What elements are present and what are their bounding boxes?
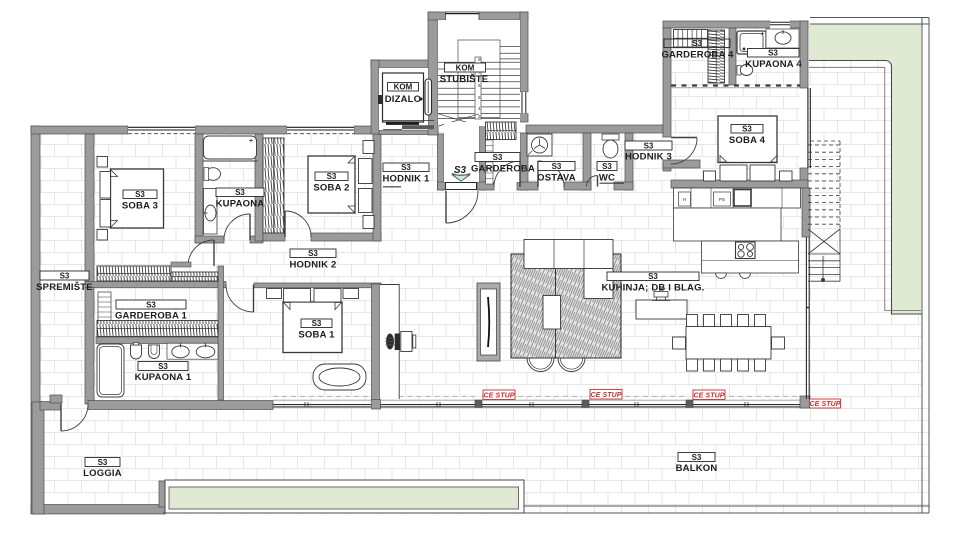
svg-text:KOM: KOM (456, 63, 475, 72)
svg-text:S3: S3 (768, 49, 778, 58)
svg-text:S3: S3 (327, 172, 337, 181)
svg-text:GARDEROBA 1: GARDEROBA 1 (115, 311, 188, 322)
svg-text:CE STUP: CE STUP (590, 392, 621, 399)
svg-text:SOBA 1: SOBA 1 (298, 330, 335, 341)
svg-text:PS: PS (719, 197, 725, 202)
svg-text:KOM: KOM (394, 83, 413, 92)
svg-text:S3: S3 (602, 162, 612, 171)
svg-text:S3: S3 (158, 362, 168, 371)
svg-text:HODNIK 3: HODNIK 3 (625, 152, 672, 163)
svg-text:SOBA 3: SOBA 3 (122, 201, 158, 212)
svg-text:WC: WC (599, 173, 615, 184)
svg-text:S3: S3 (308, 249, 318, 258)
svg-text:OSTAVA: OSTAVA (537, 173, 576, 184)
svg-text:S3: S3 (692, 39, 702, 48)
svg-text:S3: S3 (312, 319, 322, 328)
svg-text:S3: S3 (401, 163, 411, 172)
svg-text:S3: S3 (552, 162, 562, 171)
svg-text:LOGGIA: LOGGIA (83, 468, 122, 479)
svg-text:KUPAONA 4: KUPAONA 4 (745, 59, 802, 70)
svg-text:S3: S3 (135, 190, 145, 199)
svg-text:SOBA 4: SOBA 4 (729, 135, 766, 146)
svg-text:GARDEROBA: GARDEROBA (471, 164, 535, 175)
svg-text:S3: S3 (648, 272, 658, 281)
svg-text:H: H (683, 197, 686, 202)
svg-text:HODNIK 2: HODNIK 2 (290, 260, 337, 271)
svg-text:CE STUP: CE STUP (483, 392, 514, 399)
svg-text:S3: S3 (692, 453, 702, 462)
svg-text:KUPAONA 1: KUPAONA 1 (135, 372, 192, 383)
svg-text:KUPAONA: KUPAONA (216, 199, 265, 210)
svg-text:DIZALO: DIZALO (385, 94, 422, 105)
svg-text:CE STUP: CE STUP (693, 392, 724, 399)
svg-text:S3: S3 (146, 300, 156, 309)
svg-text:S3: S3 (493, 153, 503, 162)
svg-text:S3: S3 (742, 125, 752, 134)
svg-text:STUBIŠTE: STUBIŠTE (440, 73, 489, 85)
svg-text:HODNIK 1: HODNIK 1 (383, 174, 431, 185)
svg-text:GARDEROBA 4: GARDEROBA 4 (661, 50, 734, 61)
svg-text:S3: S3 (60, 271, 70, 280)
svg-text:S3: S3 (98, 458, 108, 467)
svg-text:BALKON: BALKON (676, 463, 718, 474)
svg-text:CE STUP: CE STUP (809, 401, 840, 408)
svg-text:S3: S3 (235, 188, 245, 197)
svg-text:S3: S3 (644, 141, 654, 150)
svg-text:SOBA 2: SOBA 2 (313, 183, 349, 194)
svg-text:KUHINJA; DB I BLAG.: KUHINJA; DB I BLAG. (601, 283, 704, 294)
svg-text:SPREMIŠTE: SPREMIŠTE (36, 281, 93, 293)
